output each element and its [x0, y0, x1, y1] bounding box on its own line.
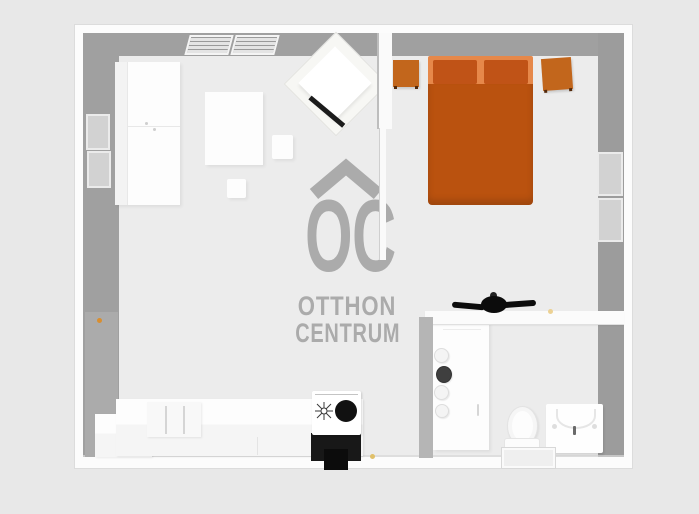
nightstand-foot	[544, 90, 547, 93]
right-window-pane-icon	[597, 152, 623, 196]
wardrobe-side-panel	[115, 62, 128, 205]
bathroom-top-wall	[425, 311, 624, 325]
partition-wall-thin	[379, 128, 386, 260]
logo-text-line2: CENTRUM	[295, 318, 399, 349]
door-handle-icon	[97, 318, 102, 323]
cabinet-door-line	[165, 406, 167, 434]
burner-icon	[335, 400, 357, 422]
double-bed	[428, 56, 533, 205]
wall-hook-icon	[435, 404, 449, 418]
floorplan-render: OC OTTHON CENTRUM	[0, 0, 699, 514]
wall-hook-icon	[434, 385, 449, 400]
counter-seam	[257, 437, 258, 455]
wardrobe-divider	[127, 126, 180, 127]
stove-edge	[315, 394, 358, 395]
washer-dial-icon	[552, 424, 557, 429]
ceiling-fan-icon	[481, 296, 507, 313]
logo-monogram: OC	[305, 190, 389, 284]
nightstand-foot	[394, 86, 397, 89]
nightstand-foot	[415, 86, 418, 89]
accent-dot-icon	[548, 309, 553, 314]
shower-tray	[501, 447, 556, 469]
rug-table	[205, 92, 263, 165]
washer-dial-icon	[592, 424, 597, 429]
left-window-pane-icon	[86, 114, 110, 150]
accent-knob-icon	[370, 454, 375, 459]
washer-latch-icon	[573, 426, 576, 435]
wardrobe-handle-icon	[153, 128, 156, 131]
pillow	[433, 60, 477, 84]
nightstand-left	[393, 60, 419, 87]
side-chair	[272, 135, 293, 159]
gas-burner-icon	[315, 402, 333, 420]
stool	[227, 179, 246, 198]
wardrobe-handle-icon	[145, 122, 148, 125]
bathroom-left-wall	[419, 317, 433, 458]
blinds-window-icon	[230, 35, 279, 55]
wall-right	[598, 33, 624, 457]
bed-duvet	[428, 84, 533, 205]
kitchen-cabinet	[147, 402, 201, 437]
nightstand-right	[541, 57, 573, 91]
washer-lid-arc	[556, 409, 596, 429]
blinds-window-icon	[184, 35, 233, 55]
nightstand-foot	[569, 88, 572, 91]
partition-wall	[377, 33, 392, 129]
door-handle-icon	[477, 404, 479, 416]
wall-hook-icon	[434, 348, 449, 363]
oven-door	[324, 449, 348, 470]
wardrobe	[115, 62, 180, 205]
left-window-pane-icon	[87, 151, 111, 188]
towel-dark-icon	[436, 366, 452, 383]
pillow	[484, 60, 528, 84]
cabinet-door-line	[183, 406, 185, 434]
stove	[312, 391, 361, 435]
door-top-line	[443, 329, 481, 330]
washing-machine	[546, 404, 603, 453]
right-window-pane-icon	[597, 198, 623, 242]
